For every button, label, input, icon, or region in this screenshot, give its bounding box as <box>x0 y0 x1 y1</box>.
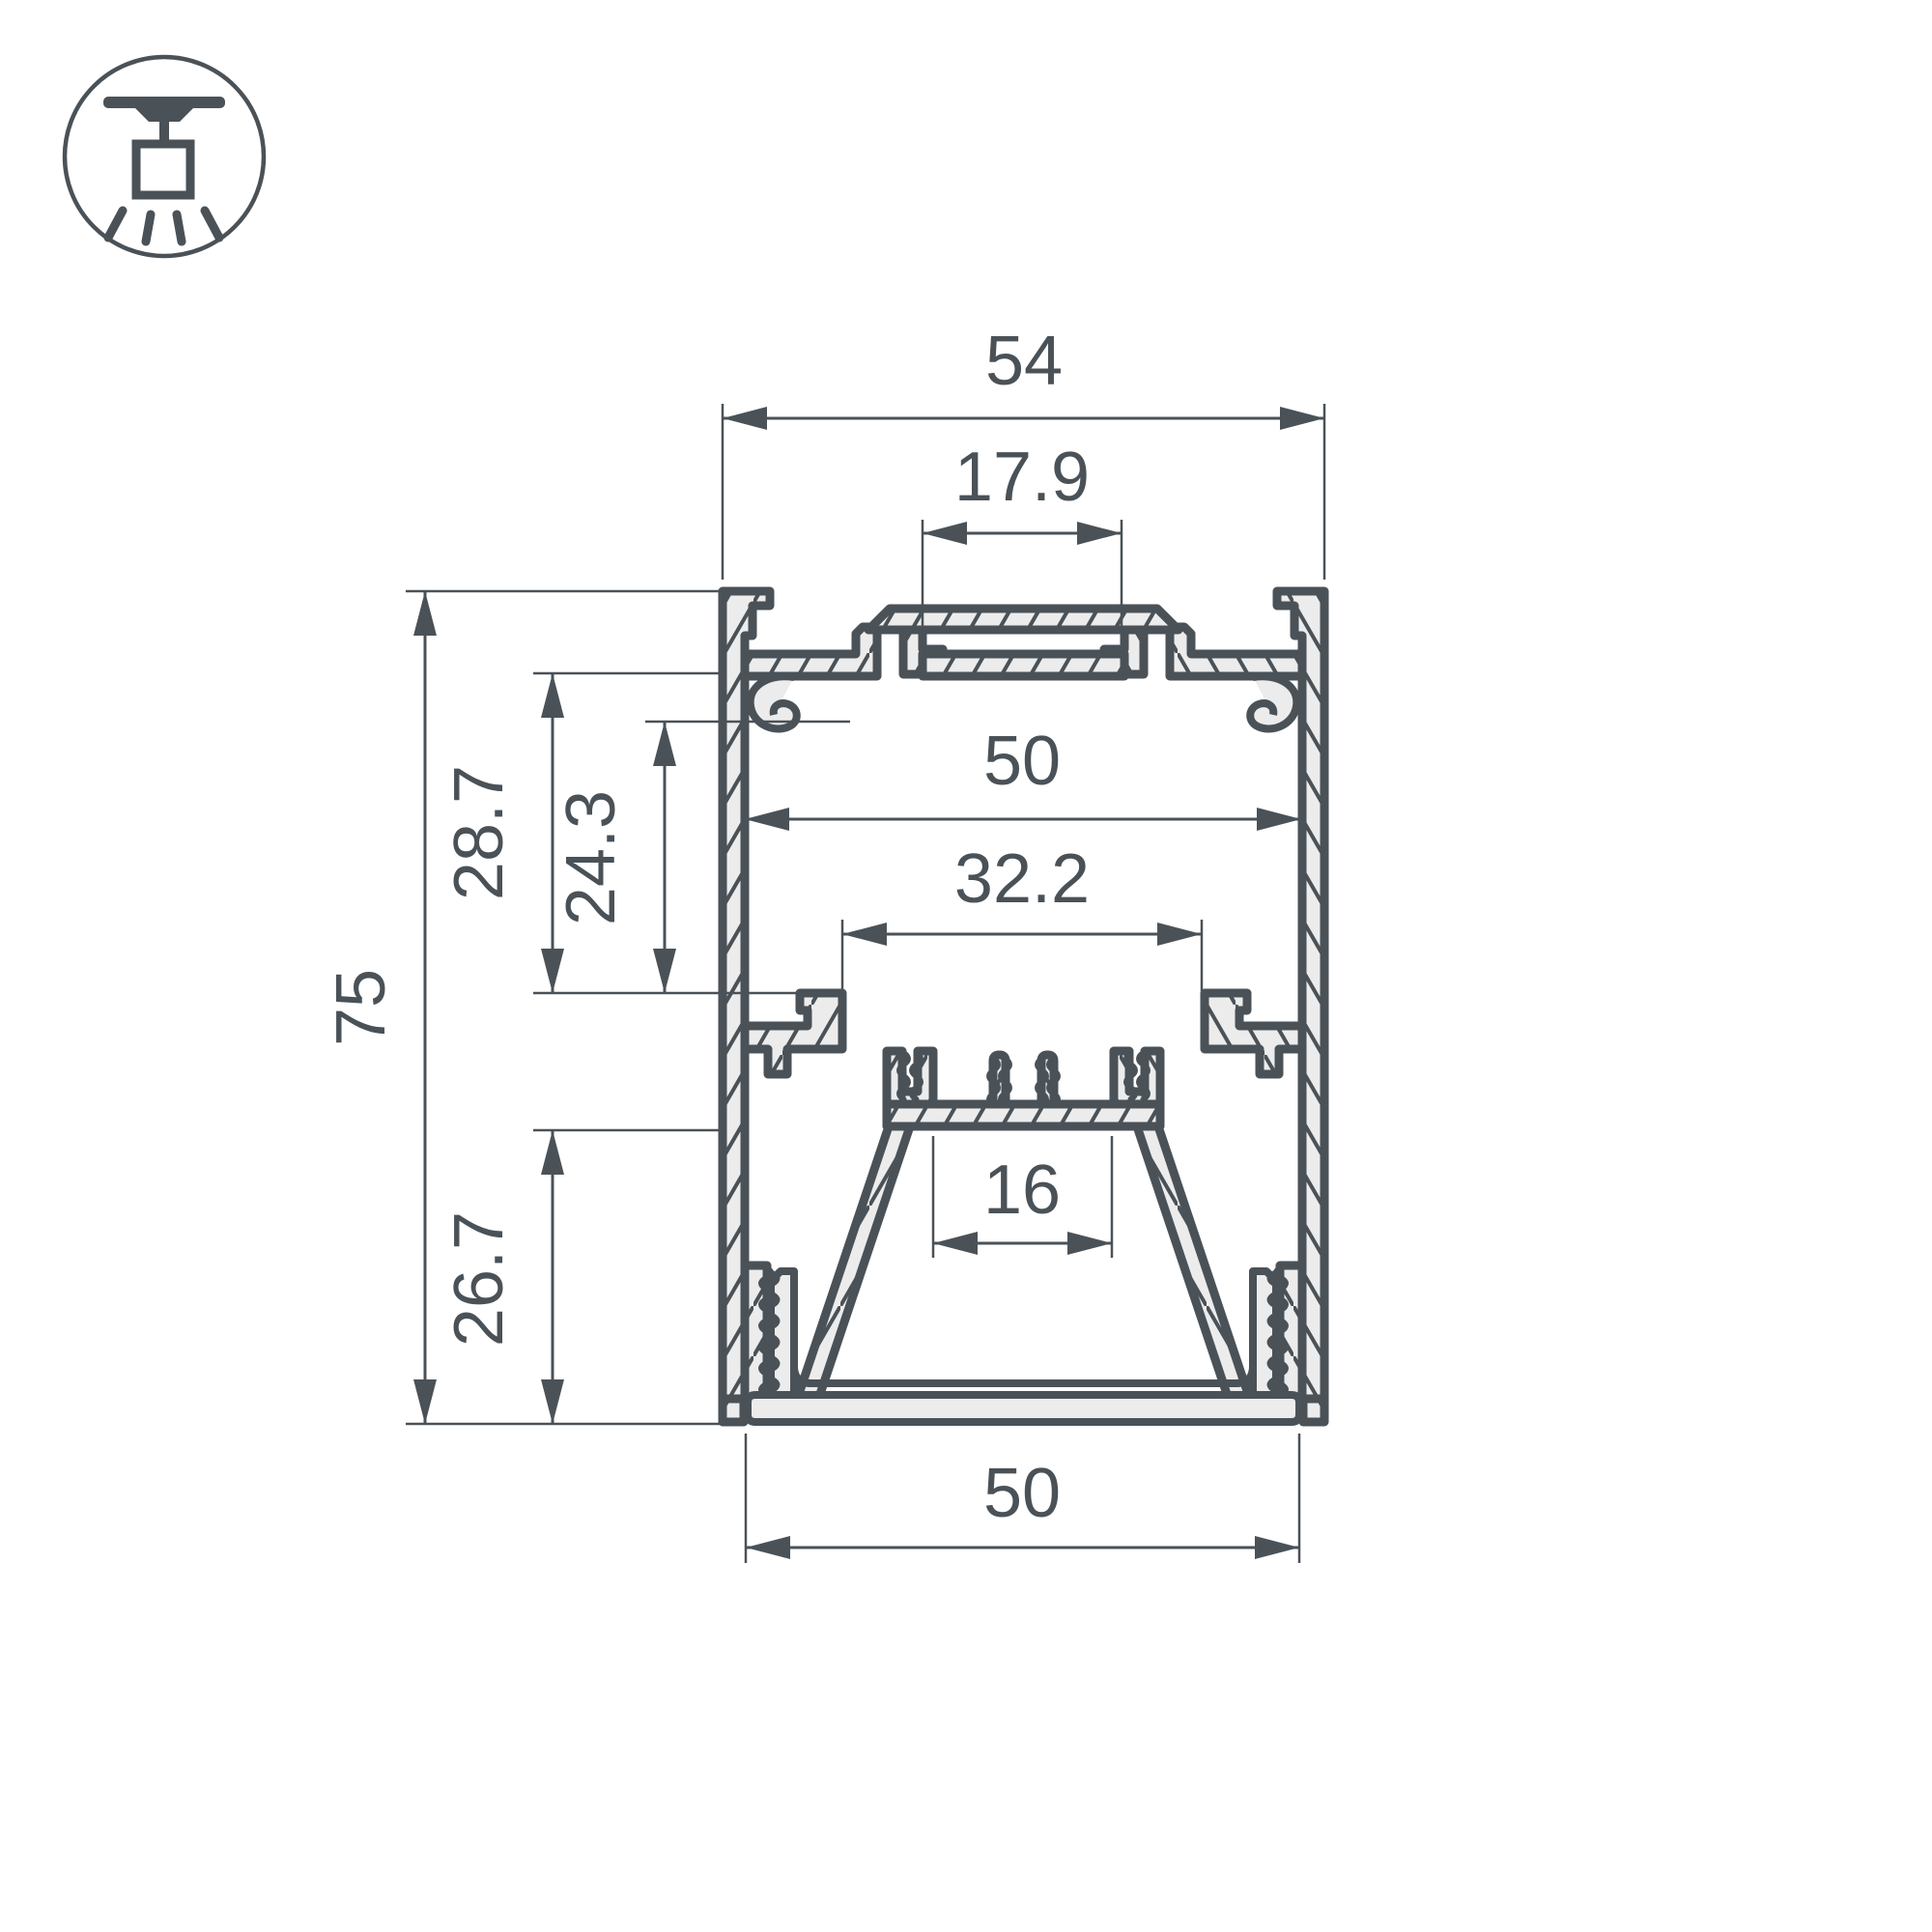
dim-label-26-7: 26.7 <box>440 1211 518 1347</box>
dimension-led-seat-width: 16 <box>933 1136 1112 1258</box>
t-slot-plate <box>868 609 1179 630</box>
dimension-lower-depth: 26.7 <box>440 1130 721 1424</box>
icon-ceiling-bar <box>103 97 225 108</box>
tray-floor <box>887 1104 1160 1126</box>
tray-leg <box>798 1126 910 1397</box>
dim-label-17-9: 17.9 <box>954 439 1090 516</box>
dim-label-75: 75 <box>323 969 400 1046</box>
dimension-bottom-width: 50 <box>746 1434 1299 1563</box>
profile-right-half <box>1037 591 1324 1422</box>
dim-label-50-inner: 50 <box>983 723 1061 800</box>
dim-label-32-2: 32.2 <box>954 840 1090 918</box>
roof-segment <box>745 627 877 676</box>
mid-shelf-hook <box>745 993 842 1074</box>
dimension-slot-width: 17.9 <box>923 439 1122 626</box>
pendant-ceiling-light-icon <box>65 57 264 256</box>
diffuser-inner-line <box>794 1275 1253 1383</box>
dimension-ledge-width: 32.2 <box>842 840 1202 991</box>
dim-label-28-7: 28.7 <box>440 765 518 900</box>
roof-center <box>923 654 1124 676</box>
dim-label-16: 16 <box>983 1151 1061 1229</box>
technical-drawing: 54 17.9 50 32.2 <box>0 0 1932 1932</box>
dim-label-24-3: 24.3 <box>553 790 630 925</box>
diffuser-bottom <box>748 1395 1299 1422</box>
profile-cross-section <box>723 591 1324 1422</box>
icon-light-rays <box>108 211 219 241</box>
dim-label-54: 54 <box>985 323 1063 400</box>
icon-fixture-box <box>136 144 190 195</box>
wall-foot <box>723 1399 744 1422</box>
dimension-inner-width: 50 <box>745 723 1301 831</box>
dimension-total-height: 75 <box>323 591 734 1424</box>
dim-label-50-bottom: 50 <box>983 1455 1061 1532</box>
dimension-boss-depth: 24.3 <box>553 722 850 993</box>
profile-left-half <box>723 591 1009 1422</box>
